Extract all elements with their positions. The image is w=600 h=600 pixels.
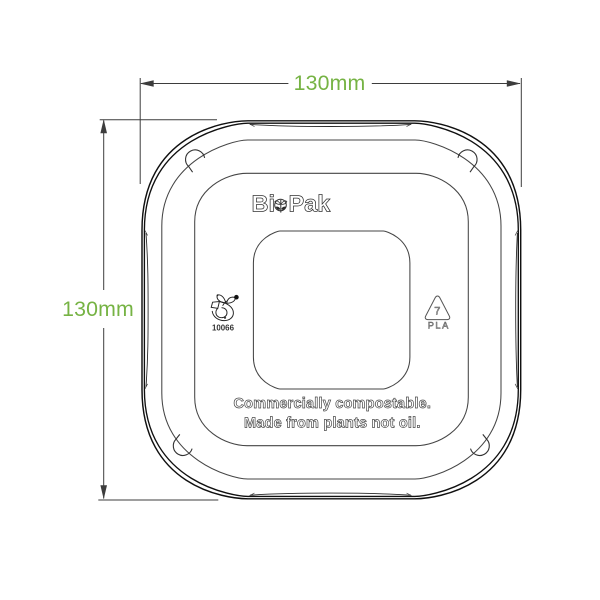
svg-text:7: 7 xyxy=(434,306,440,318)
svg-text:130mm: 130mm xyxy=(62,297,134,321)
svg-text:Made from plants not oil.: Made from plants not oil. xyxy=(244,415,421,431)
svg-text:PLA: PLA xyxy=(428,321,450,331)
svg-text:Bi: Bi xyxy=(252,190,276,216)
svg-text:130mm: 130mm xyxy=(294,71,366,95)
svg-text:10066: 10066 xyxy=(212,323,235,332)
svg-text:Pak: Pak xyxy=(289,190,332,216)
svg-text:Commercially compostable.: Commercially compostable. xyxy=(234,396,432,412)
